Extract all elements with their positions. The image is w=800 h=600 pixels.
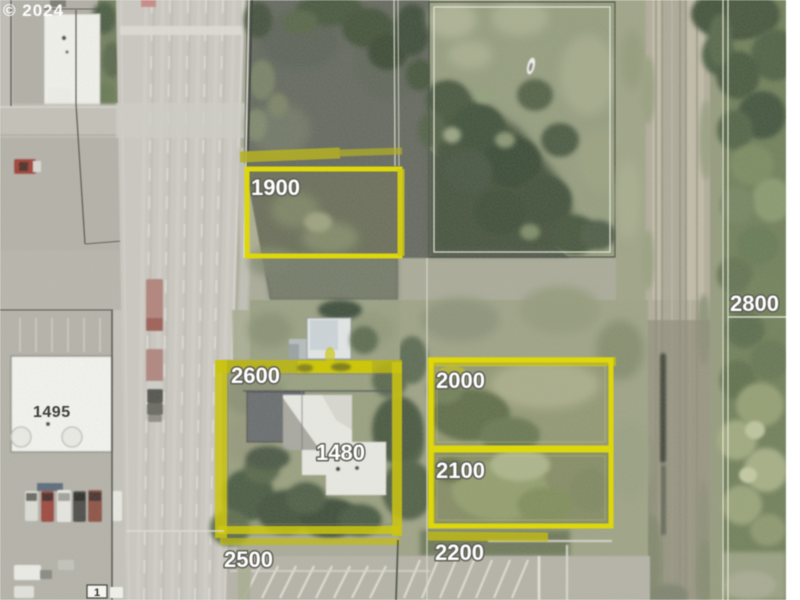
svg-text:2200: 2200	[435, 540, 484, 565]
svg-text:2000: 2000	[436, 368, 485, 393]
svg-text:1: 1	[94, 587, 100, 599]
svg-text:1900: 1900	[251, 175, 300, 200]
svg-text:© 2024: © 2024	[3, 1, 64, 20]
svg-text:1480: 1480	[316, 440, 365, 465]
svg-text:2500: 2500	[224, 547, 273, 572]
svg-text:2600: 2600	[231, 363, 280, 388]
svg-text:1495: 1495	[33, 404, 71, 421]
svg-text:2100: 2100	[436, 458, 485, 483]
svg-text:2800: 2800	[730, 291, 779, 316]
